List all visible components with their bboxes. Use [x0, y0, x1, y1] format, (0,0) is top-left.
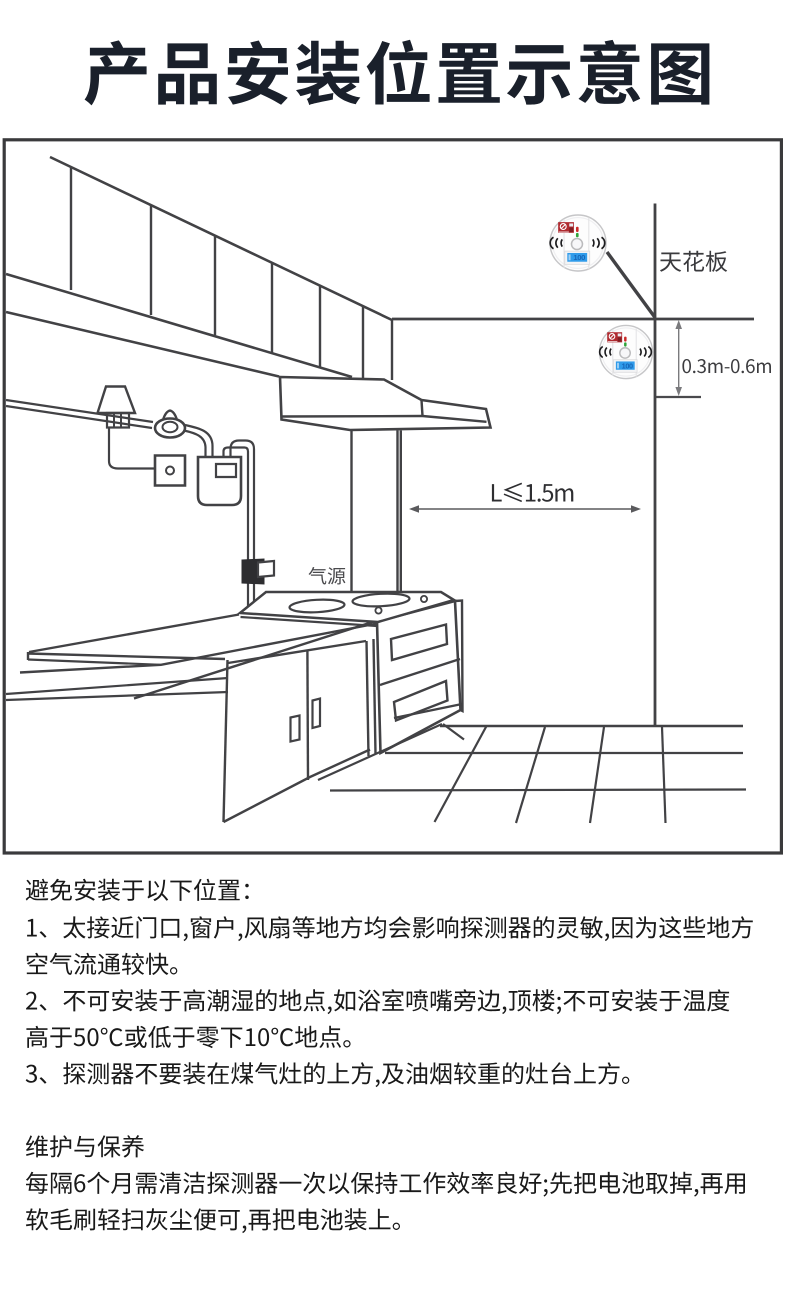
svg-text:100: 100 [622, 361, 633, 370]
svg-text:100: 100 [573, 253, 585, 262]
